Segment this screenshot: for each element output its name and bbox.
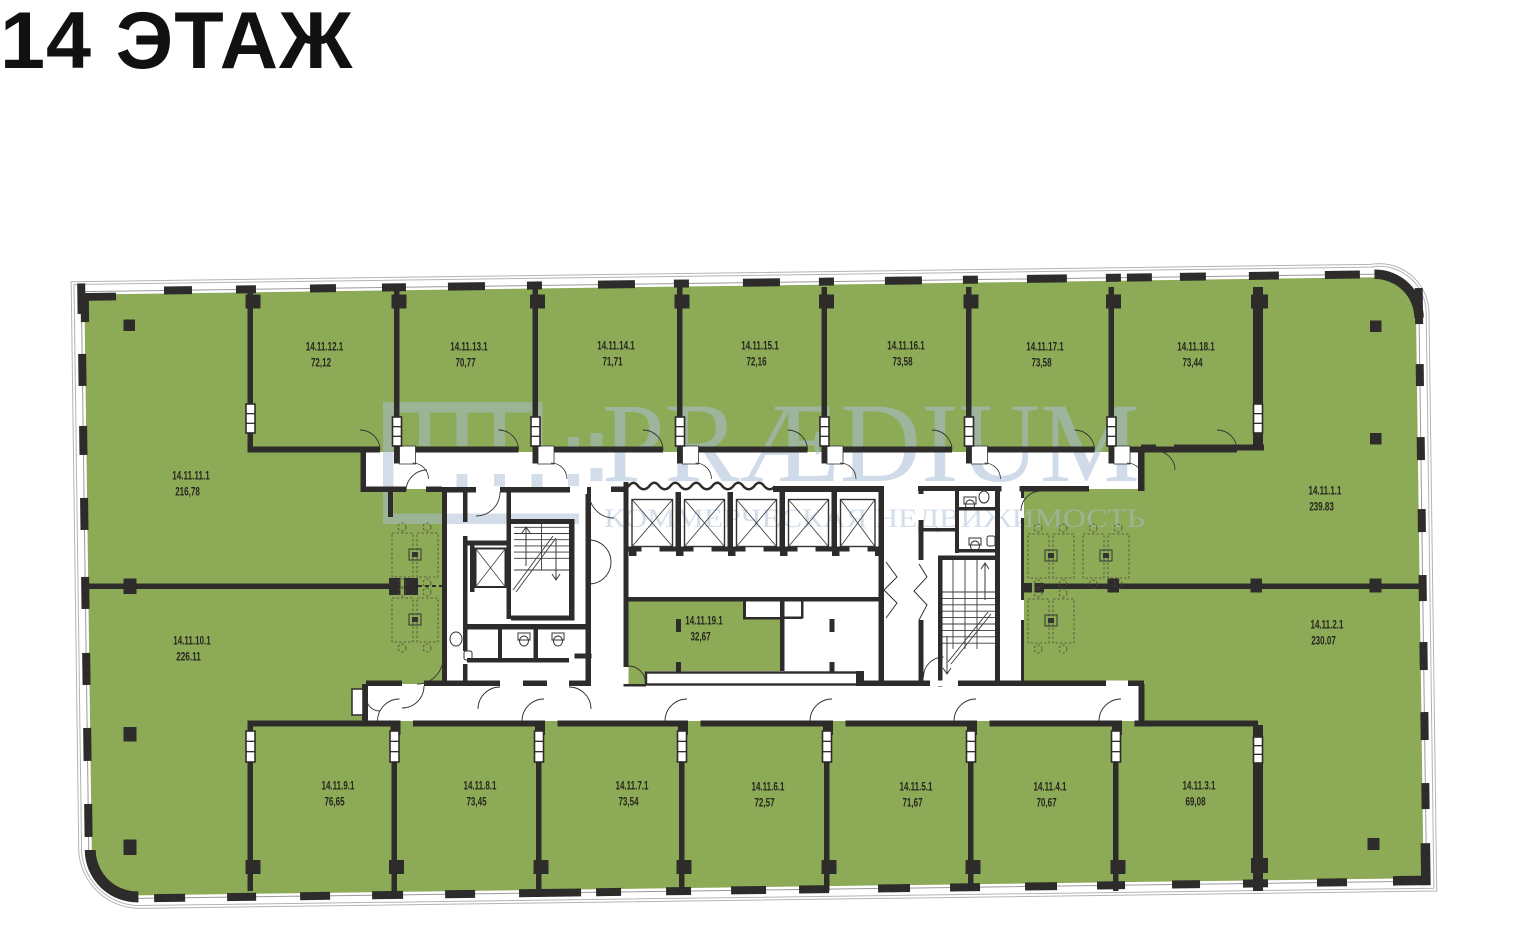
- svg-text:14.11.7.1: 14.11.7.1: [616, 780, 649, 793]
- svg-text:226.11: 226.11: [176, 651, 201, 664]
- svg-text:72,12: 72,12: [311, 357, 331, 370]
- svg-text:14.11.2.1: 14.11.2.1: [1311, 619, 1344, 632]
- svg-text:14.11.3.1: 14.11.3.1: [1183, 780, 1216, 793]
- svg-text:72,57: 72,57: [754, 797, 774, 810]
- svg-text:14.11.15.1: 14.11.15.1: [741, 340, 779, 353]
- svg-text:14.11.16.1: 14.11.16.1: [887, 340, 925, 353]
- svg-text:14.11.8.1: 14.11.8.1: [464, 780, 497, 793]
- svg-text:32,67: 32,67: [690, 631, 710, 644]
- svg-text:73,58: 73,58: [1031, 357, 1051, 370]
- svg-text:14.11.17.1: 14.11.17.1: [1026, 341, 1064, 354]
- svg-text:14.11.9.1: 14.11.9.1: [322, 780, 355, 793]
- svg-text:14.11.19.1: 14.11.19.1: [685, 615, 723, 628]
- svg-text:73,45: 73,45: [466, 796, 486, 809]
- svg-text:73,54: 73,54: [618, 796, 638, 809]
- svg-text:71,67: 71,67: [902, 797, 922, 810]
- svg-text:14.11.1.1: 14.11.1.1: [1309, 485, 1342, 498]
- svg-text:14.11.14.1: 14.11.14.1: [597, 340, 635, 353]
- svg-text:73,58: 73,58: [892, 356, 912, 369]
- svg-text:216,78: 216,78: [175, 486, 200, 499]
- svg-text:76,65: 76,65: [324, 796, 344, 809]
- svg-text:14.11.4.1: 14.11.4.1: [1034, 781, 1067, 794]
- svg-text:14.11.5.1: 14.11.5.1: [900, 781, 933, 794]
- svg-text:14.11.10.1: 14.11.10.1: [173, 635, 211, 648]
- svg-text:69,08: 69,08: [1185, 796, 1205, 809]
- svg-text:14.11.18.1: 14.11.18.1: [1177, 341, 1215, 354]
- svg-text:73,44: 73,44: [1182, 357, 1202, 370]
- svg-text:70,67: 70,67: [1036, 797, 1056, 810]
- svg-text:14.11.12.1: 14.11.12.1: [306, 341, 344, 354]
- svg-text:14.11.11.1: 14.11.11.1: [172, 470, 210, 483]
- svg-text:14.11.13.1: 14.11.13.1: [450, 341, 488, 354]
- svg-text:71,71: 71,71: [602, 356, 622, 369]
- svg-text:70,77: 70,77: [455, 357, 475, 370]
- svg-text:72,16: 72,16: [746, 356, 766, 369]
- svg-text:14.11.6.1: 14.11.6.1: [752, 781, 785, 794]
- svg-text:230.07: 230.07: [1311, 635, 1336, 648]
- svg-text:239.83: 239.83: [1309, 501, 1334, 514]
